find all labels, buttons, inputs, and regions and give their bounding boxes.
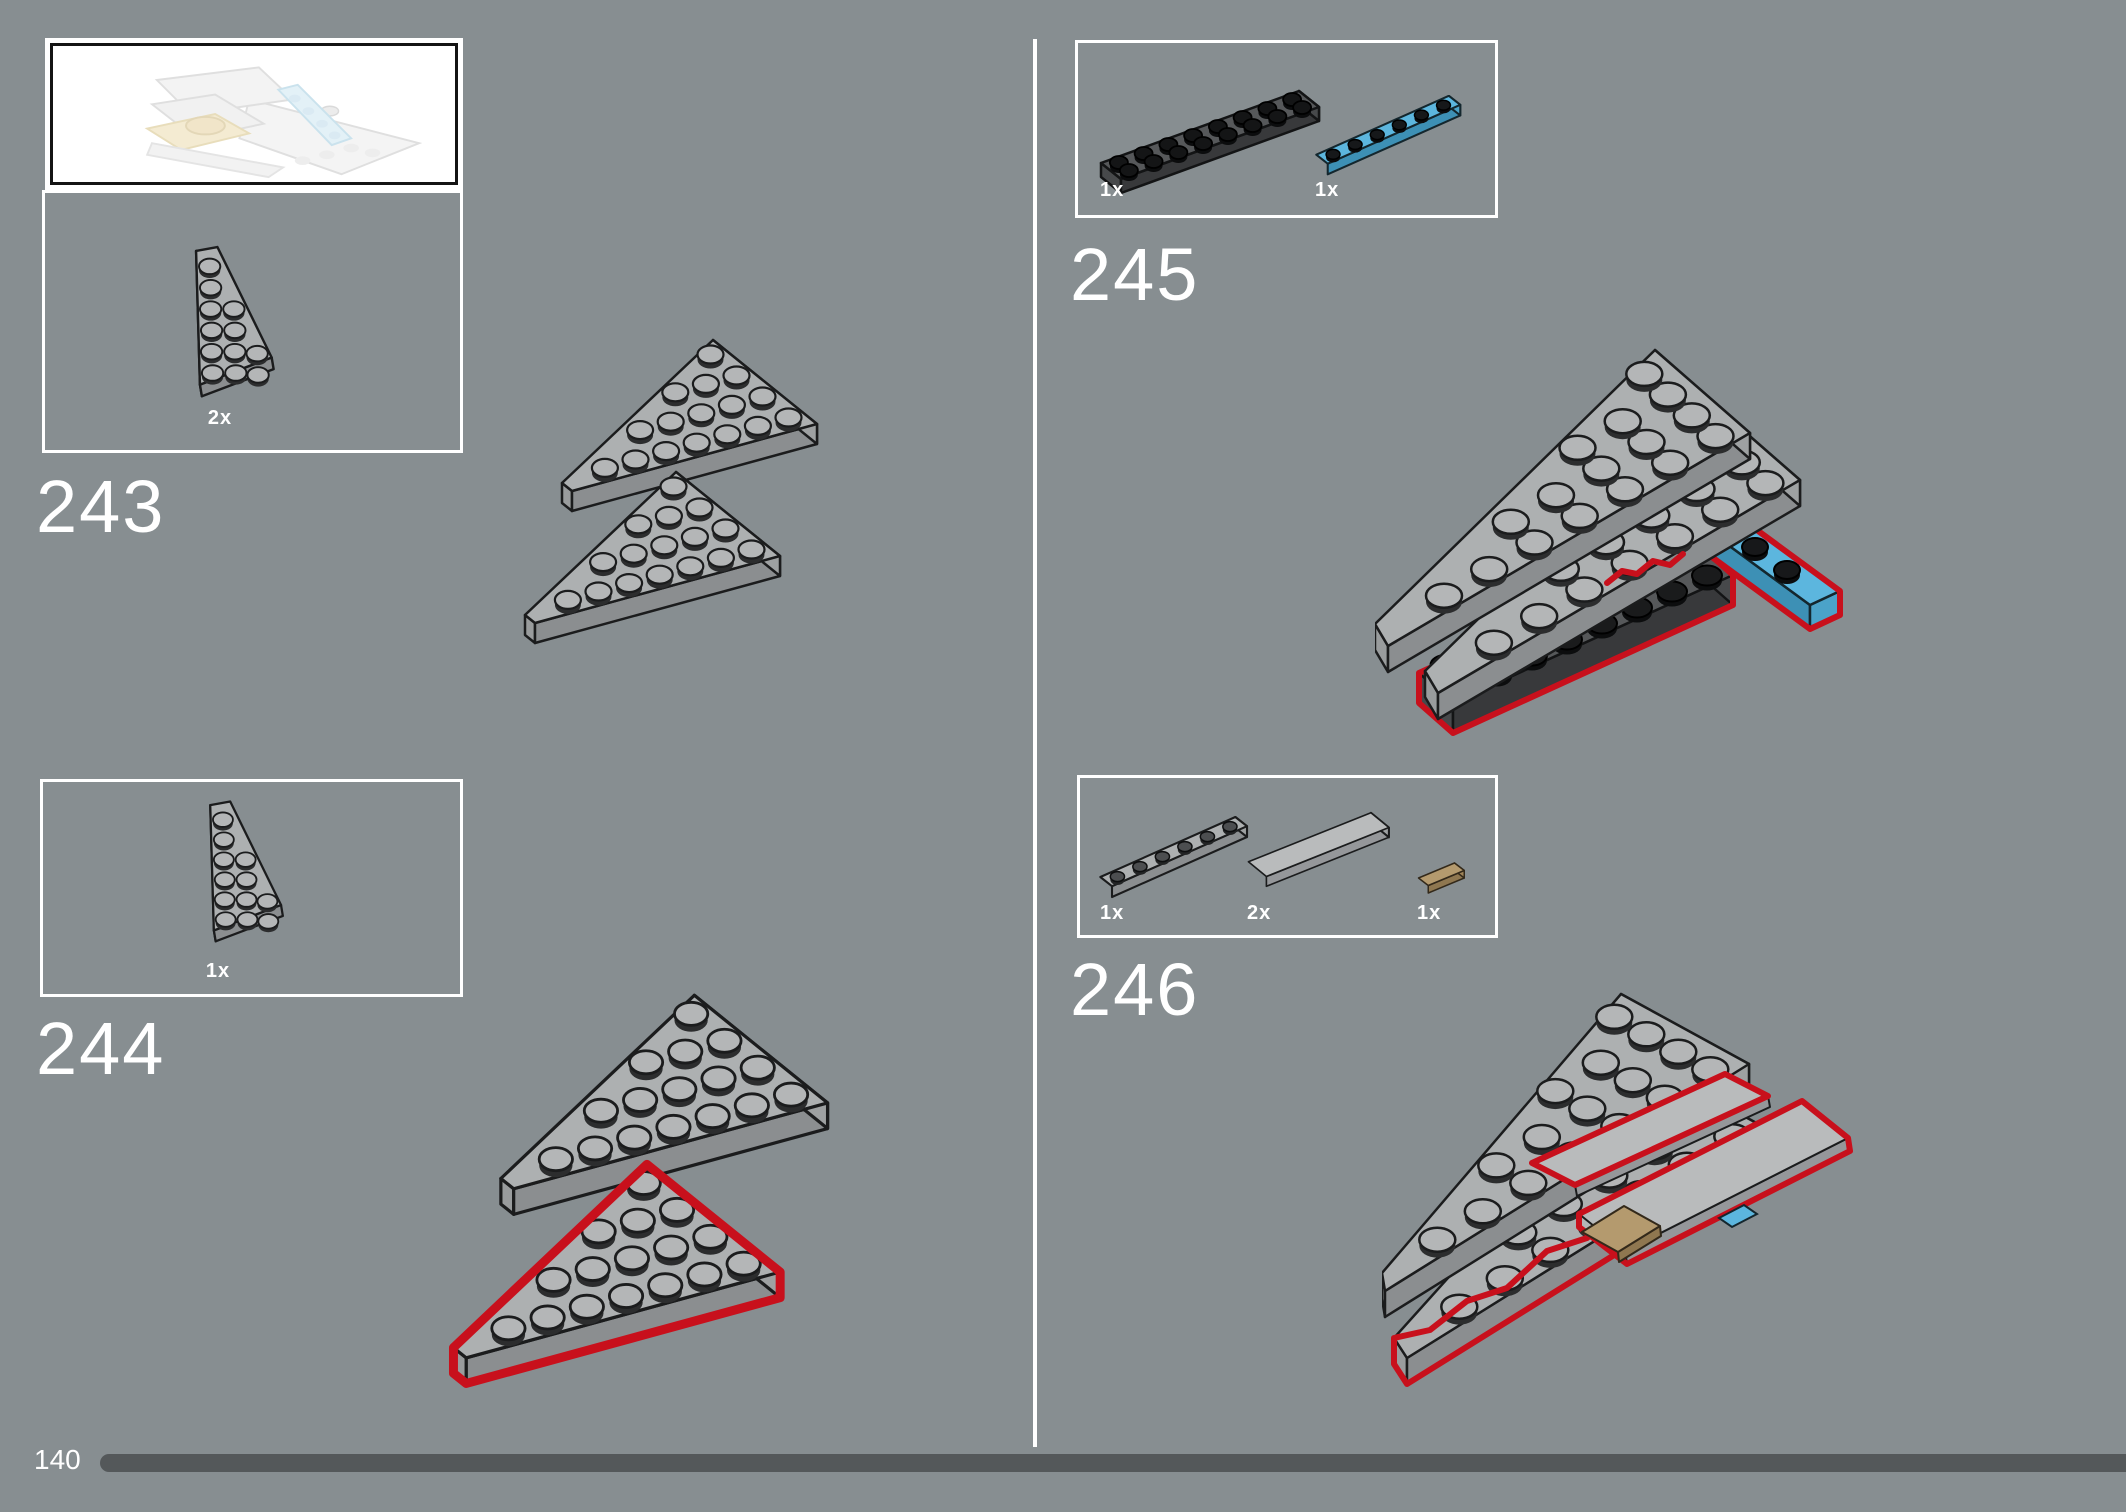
parts-box-step-244: 1x [40, 779, 463, 997]
part-quantity: 1x [1417, 902, 1441, 925]
step-number-243: 243 [36, 470, 165, 544]
part-wedge-plate-icon [183, 796, 301, 955]
part-quantity: 2x [1247, 902, 1271, 925]
step-246-assembly-diagram [1382, 986, 1862, 1406]
step-number-245: 245 [1070, 238, 1199, 312]
step-245-assembly-diagram [1375, 333, 1845, 753]
part-quantity: 1x [1100, 902, 1124, 925]
parts-box-step-245: 1x 1x [1075, 40, 1498, 218]
step-number-246: 246 [1070, 953, 1199, 1027]
part-quantity: 1x [1100, 179, 1124, 202]
parts-box-step-243: 2x [42, 190, 463, 453]
part-plate-1x6-azure-icon [1308, 95, 1480, 185]
part-plate-2x8-dark-icon [1093, 61, 1343, 211]
part-plate-1x6-gray-icon [1092, 816, 1267, 908]
instruction-page: { "page": { "number": "140", "background… [0, 0, 2126, 1512]
part-tile-2x6-icon [1245, 803, 1425, 901]
step-244-assembly-diagram [424, 986, 866, 1403]
model-preview-box [45, 38, 463, 190]
progress-bar [100, 1454, 2126, 1472]
model-preview-frame [50, 43, 458, 185]
step-number-244: 244 [36, 1012, 165, 1086]
column-divider [1033, 39, 1037, 1447]
part-quantity: 2x [180, 407, 260, 430]
page-number: 140 [34, 1444, 81, 1476]
step-243-assembly-diagram [502, 333, 847, 658]
part-tile-1x2-tan-icon [1416, 854, 1484, 899]
part-wedge-plate-icon [167, 241, 293, 411]
parts-box-step-246: 1x 2x 1x [1077, 775, 1498, 938]
model-preview-image [53, 46, 455, 182]
part-quantity: 1x [178, 960, 258, 983]
part-quantity: 1x [1315, 179, 1339, 202]
